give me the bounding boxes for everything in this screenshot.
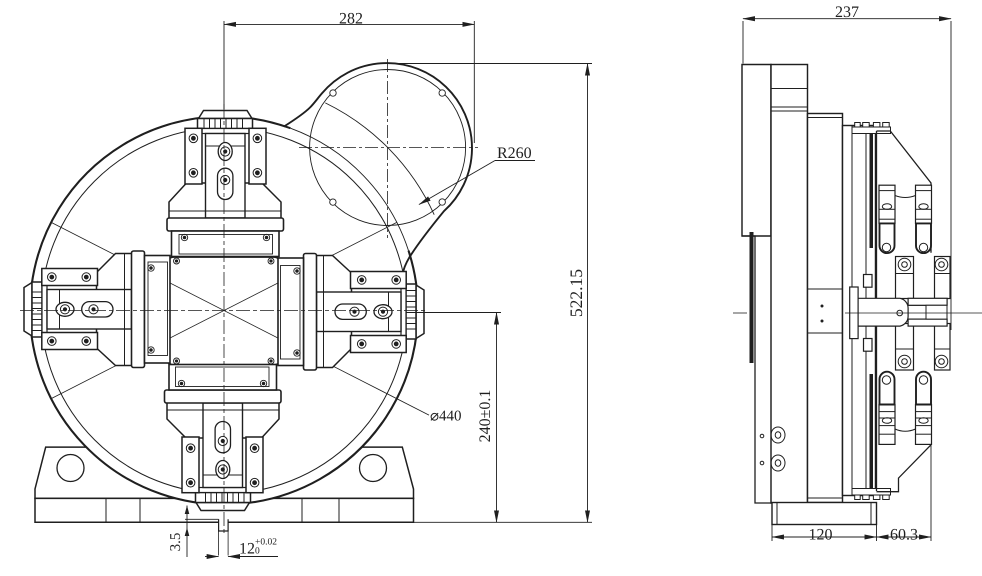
svg-text:120: 120 (809, 527, 833, 544)
svg-text:522.15: 522.15 (566, 269, 586, 317)
svg-text:282: 282 (339, 11, 363, 28)
svg-text:237: 237 (835, 4, 859, 21)
svg-text:60.3: 60.3 (890, 527, 918, 544)
svg-text:240±0.1: 240±0.1 (477, 390, 494, 443)
svg-text:0: 0 (255, 547, 260, 557)
svg-text:⌀440: ⌀440 (430, 409, 462, 425)
svg-text:3.5: 3.5 (168, 533, 184, 552)
svg-text:12: 12 (239, 541, 255, 558)
svg-text:R260: R260 (497, 145, 532, 162)
